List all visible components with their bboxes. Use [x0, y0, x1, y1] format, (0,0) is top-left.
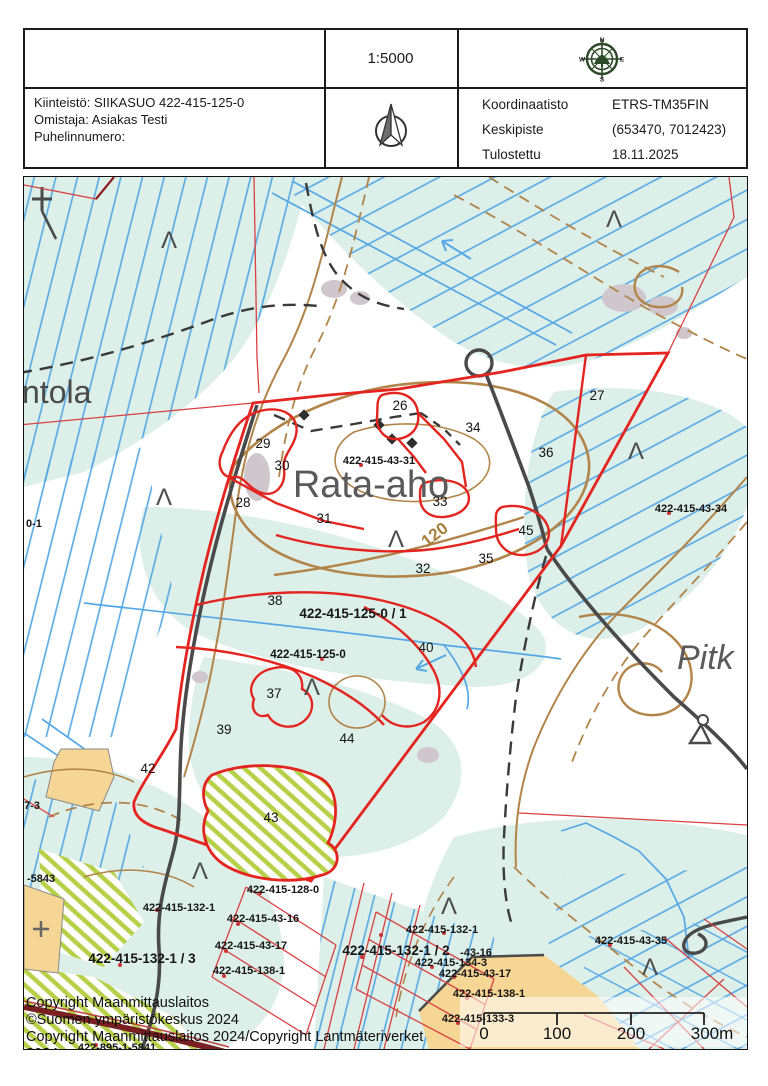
stand-number-label: 27 — [589, 388, 604, 403]
copyright-text: Copyright Maanmittauslaitos 2024/Copyrig… — [26, 1029, 423, 1045]
parcel-id-label: 422-415-43-60 — [465, 1048, 537, 1049]
meta-value: (653470, 7012423) — [612, 122, 726, 137]
parcel-id-label: 422-415-133-3 — [442, 1013, 514, 1025]
swamp-symbol: Λ — [388, 526, 404, 553]
compass-w: W — [579, 56, 586, 63]
map-canvas: ΛΛΛΛΛΛΛΛΛ ntolaRata-ahoPitk120 422-415-4… — [24, 177, 747, 1049]
parcel-id-label: 422-415-43-17 — [215, 940, 287, 952]
stand-number-label: 28 — [235, 495, 250, 510]
parcel-id-label: 422-415-43-31 — [343, 455, 415, 467]
meta-row-keskipiste: Keskipiste (653470, 7012423) — [457, 122, 746, 142]
place-name-label: Pitk — [677, 639, 736, 677]
copyright-text: 2024 — [26, 1046, 58, 1049]
swamp-symbol: Λ — [161, 227, 177, 254]
north-arrow-icon — [371, 101, 411, 153]
place-name-label: Rata-aho — [293, 464, 449, 506]
parcel-id-label: 422-415-43-16 — [227, 913, 299, 925]
stand-number-label: 39 — [216, 722, 231, 737]
stand-number-label: 38 — [267, 593, 282, 608]
parcel-id-label: 27-3 — [24, 800, 40, 812]
parcel-id-label: 422-415-125-0 / 1 — [299, 606, 407, 621]
parcel-id-label: 422-415-132-1 / 2 — [342, 943, 449, 958]
compass-n: N — [599, 37, 604, 44]
compass-e: E — [619, 56, 624, 63]
stand-number-label: 36 — [538, 445, 553, 460]
place-name-label: ntola — [24, 374, 92, 410]
meta-row-tulostettu: Tulostettu 18.11.2025 — [457, 147, 746, 167]
stand-number-label: 31 — [316, 511, 331, 526]
swamp-symbol: Λ — [606, 206, 622, 233]
map-printout-page: { "header": { "scale": "1:5000", "proper… — [0, 0, 768, 1086]
swamp-symbol: Λ — [156, 484, 172, 511]
compass-s: S — [599, 76, 604, 82]
stand-number-label: 45 — [518, 523, 533, 538]
parcel-id-label: 422-415-132-1 — [406, 924, 478, 936]
parcel-id-label: 422-415-43-35 — [595, 935, 667, 947]
compass-cell: N E S W — [457, 30, 746, 87]
copyright-text: Copyright Maanmittauslaitos — [26, 995, 209, 1011]
property-id-line: Kiinteistö: SIIKASUO 422-415-125-0 — [34, 94, 333, 111]
map-scale-cell: 1:5000 — [324, 30, 457, 87]
north-arrow-cell — [324, 87, 457, 167]
stand-number-label: 29 — [255, 436, 270, 451]
stand-number-label: 30 — [274, 458, 289, 473]
swamp-symbol: Λ — [642, 954, 658, 981]
meta-value: 18.11.2025 — [612, 147, 679, 162]
meta-row-koordinaatisto: Koordinaatisto ETRS-TM35FIN — [457, 97, 746, 117]
swamp-symbol: Λ — [628, 438, 644, 465]
stand-number-label: 43 — [263, 810, 278, 825]
stand-number-label: 33 — [432, 494, 447, 509]
map-view[interactable]: ΛΛΛΛΛΛΛΛΛ ntolaRata-ahoPitk120 422-415-4… — [23, 176, 748, 1050]
parcel-id-label: 422-415-43-17 — [439, 968, 511, 980]
parcel-id-label: 422-415-125-0 — [270, 649, 345, 661]
scale-bar-label: 0 — [479, 1024, 488, 1043]
compass-rose-icon: N E S W — [579, 36, 625, 82]
stand-number-label: 26 — [392, 398, 407, 413]
meta-key: Koordinaatisto — [482, 97, 568, 112]
scale-bar-label: 300m — [691, 1024, 734, 1043]
parcel-id-label: 422-415-138-1 — [453, 988, 525, 1000]
swamp-symbol: Λ — [441, 893, 457, 920]
parcel-id-label: 422-415-128-0 — [247, 884, 319, 896]
scale-bar-label: 100 — [543, 1024, 571, 1043]
owner-line: Omistaja: Asiakas Testi — [34, 111, 333, 128]
stand-number-label: 34 — [465, 420, 481, 435]
phone-line: Puhelinnumero: — [34, 128, 333, 145]
scale-bar-label: 200 — [617, 1024, 645, 1043]
stand-number-label: 44 — [339, 731, 355, 746]
stand-number-label: 32 — [415, 561, 430, 576]
property-info-cell: Kiinteistö: SIIKASUO 422-415-125-0 Omist… — [25, 87, 333, 174]
coordinate-info-cell: Koordinaatisto ETRS-TM35FIN Keskipiste (… — [457, 87, 746, 167]
swamp-symbol: Λ — [304, 674, 320, 701]
header-info-table: 1:5000 N E S W Kiinteistö: SIIKASUO 422-… — [23, 28, 748, 169]
parcel-id-label: 422-415-132-1 / 3 — [88, 951, 196, 966]
copyright-text: ©Suomen ympäristökeskus 2024 — [26, 1012, 239, 1028]
stand-number-label: 35 — [478, 551, 493, 566]
parcel-id-label: 422-415-43-34 — [655, 503, 728, 515]
meta-key: Tulostettu — [482, 147, 541, 162]
meta-key: Keskipiste — [482, 122, 544, 137]
parcel-id-label: -5843 — [27, 873, 55, 885]
parcel-id-label: 422-415-132-1 — [143, 902, 215, 914]
swamp-symbol: Λ — [192, 858, 208, 885]
map-scale-value: 1:5000 — [368, 50, 414, 67]
stand-number-label: 40 — [418, 640, 433, 655]
stand-number-label: 42 — [140, 761, 155, 776]
meta-value: ETRS-TM35FIN — [612, 97, 709, 112]
parcel-id-label: 0-1 — [26, 518, 42, 530]
stand-number-label: 37 — [266, 686, 281, 701]
parcel-id-label: 422-415-138-1 — [213, 965, 285, 977]
